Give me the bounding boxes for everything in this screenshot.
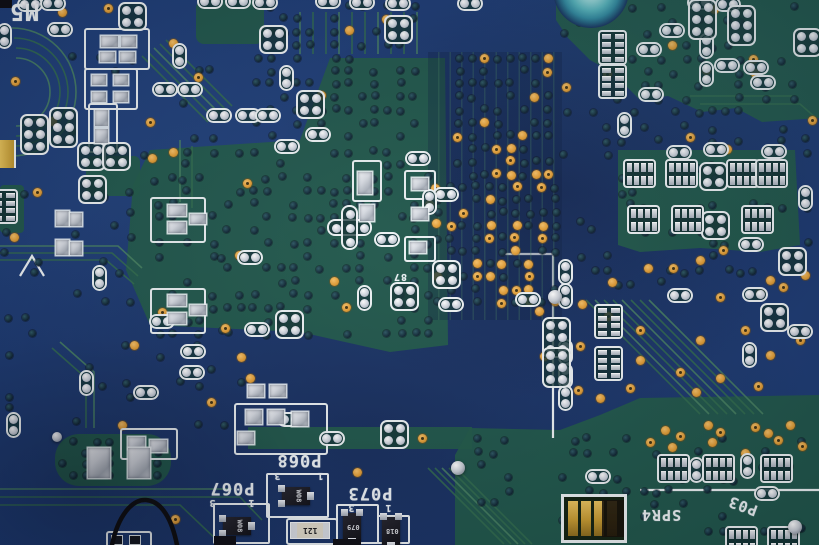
jumper-wire [112, 500, 177, 545]
pcb-photo: W08W08079018121M5P06831P07331P06731SPR4P… [0, 0, 819, 545]
jumper-wire-layer [0, 0, 819, 545]
